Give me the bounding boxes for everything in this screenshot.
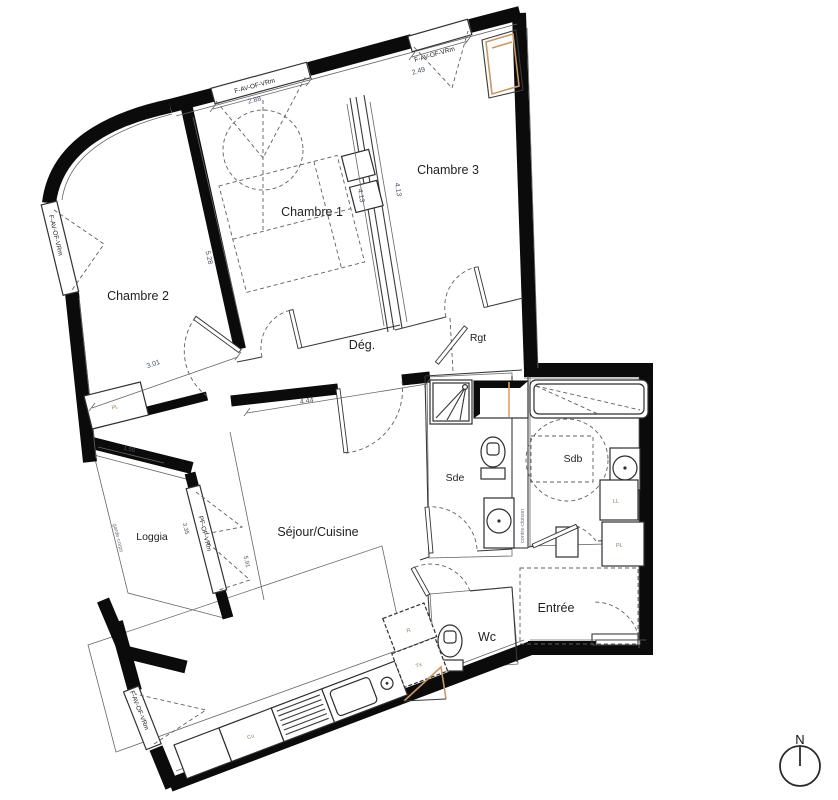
room-label-entree: Entrée [538,601,575,615]
wall-chambre1-chambre2 [186,104,240,349]
north-label: N [795,732,804,747]
bathtub [530,380,648,418]
nightstand [349,180,383,212]
room-label-chambre1: Chambre 1 [281,205,343,219]
room-label-chambre3: Chambre 3 [417,163,479,177]
door-leaf-chambre1 [289,310,302,349]
bed [219,147,396,292]
door-arc-sde [427,507,477,549]
floor-plan: F-AV-OF-VRm F-AV-OF-VRm F-AV-OF-VRm F-AV… [0,0,838,800]
room-label-rangement: Rgt [470,332,486,344]
window-left: F-AV-OF-VRm [41,201,78,295]
dim-top-window: 2.88 [247,95,262,105]
toilet-sde [481,437,505,479]
duct [474,381,528,418]
wall-sejour-top-a [231,389,338,401]
dim-top-right-window: 2.49 [411,66,426,77]
window-top-right [408,19,472,51]
room-label-loggia: Loggia [136,531,168,543]
door-arc-chambre1 [261,310,291,357]
shower [430,380,472,424]
door-arc-entree [594,602,640,644]
room-label-sdb: Sdb [564,453,583,465]
dim-chambre2-width: 3.01 [146,359,161,370]
closet-label: PL [616,543,623,549]
door-arc-chambre3 [445,267,476,317]
wall-top-a [170,94,216,106]
window-loggia-door: PF-OF-VRm [186,485,226,593]
dim-chambre2-length: 5.28 [204,250,214,265]
door-leaf-rgt [435,326,467,364]
entree-closet-right [602,522,644,566]
garde-corps-label: garde-corps [111,523,124,553]
room-label-chambre2: Chambre 2 [107,289,169,303]
wall-left-sejour-a [156,748,172,787]
wall-chambre3-bottom [486,298,523,307]
room-label-sejour: Séjour/Cuisine [277,525,358,539]
door-leaf-wc [411,567,430,596]
wall-loggia-top [84,441,192,468]
door-arc-sejour [346,381,403,453]
room-label-wc: Wc [478,630,496,644]
dimensions: 2.88 2.49 4.13 4.13 5.28 3.01 4.44 1.50 … [89,36,471,600]
nightstand [341,149,375,181]
door-arc-chambre2 [184,318,207,396]
door-leaf-sde [425,507,433,553]
sdb-clearance [531,436,593,482]
north-arrow: N [780,732,820,786]
washbasin-sde [484,498,514,548]
dim-sejour-length: 5.91 [242,555,250,568]
wall-curved-corner [49,106,170,203]
dim-chambre3-depth: 4.13 [393,182,402,197]
wall-wc-top [470,587,512,591]
floor-plan-page: F-AV-OF-VRm F-AV-OF-VRm F-AV-OF-VRm F-AV… [0,0,838,800]
door-arc-sdb [577,526,596,541]
room-label-degagement: Dég. [349,338,375,352]
room-label-sde: Sde [446,472,465,484]
wall-sejour-top-b [402,377,430,380]
dim-loggia-length: 3.35 [181,522,190,535]
dim-sejour-width: 4.44 [300,397,315,406]
door-leaf-chambre3 [474,267,488,308]
chambre2-closet: PL [84,382,149,429]
wall-top-b [309,41,412,69]
wall-loggia-right-b [220,590,228,618]
washing-machine-label: LL [613,499,619,505]
wall-chambre1-chambre3 [364,95,402,328]
wall-loggia-corner [103,600,186,667]
contre-cloison-label: contre-cloison [520,509,526,543]
bathroom-fixtures: LL PL contre-cloison [430,380,648,671]
